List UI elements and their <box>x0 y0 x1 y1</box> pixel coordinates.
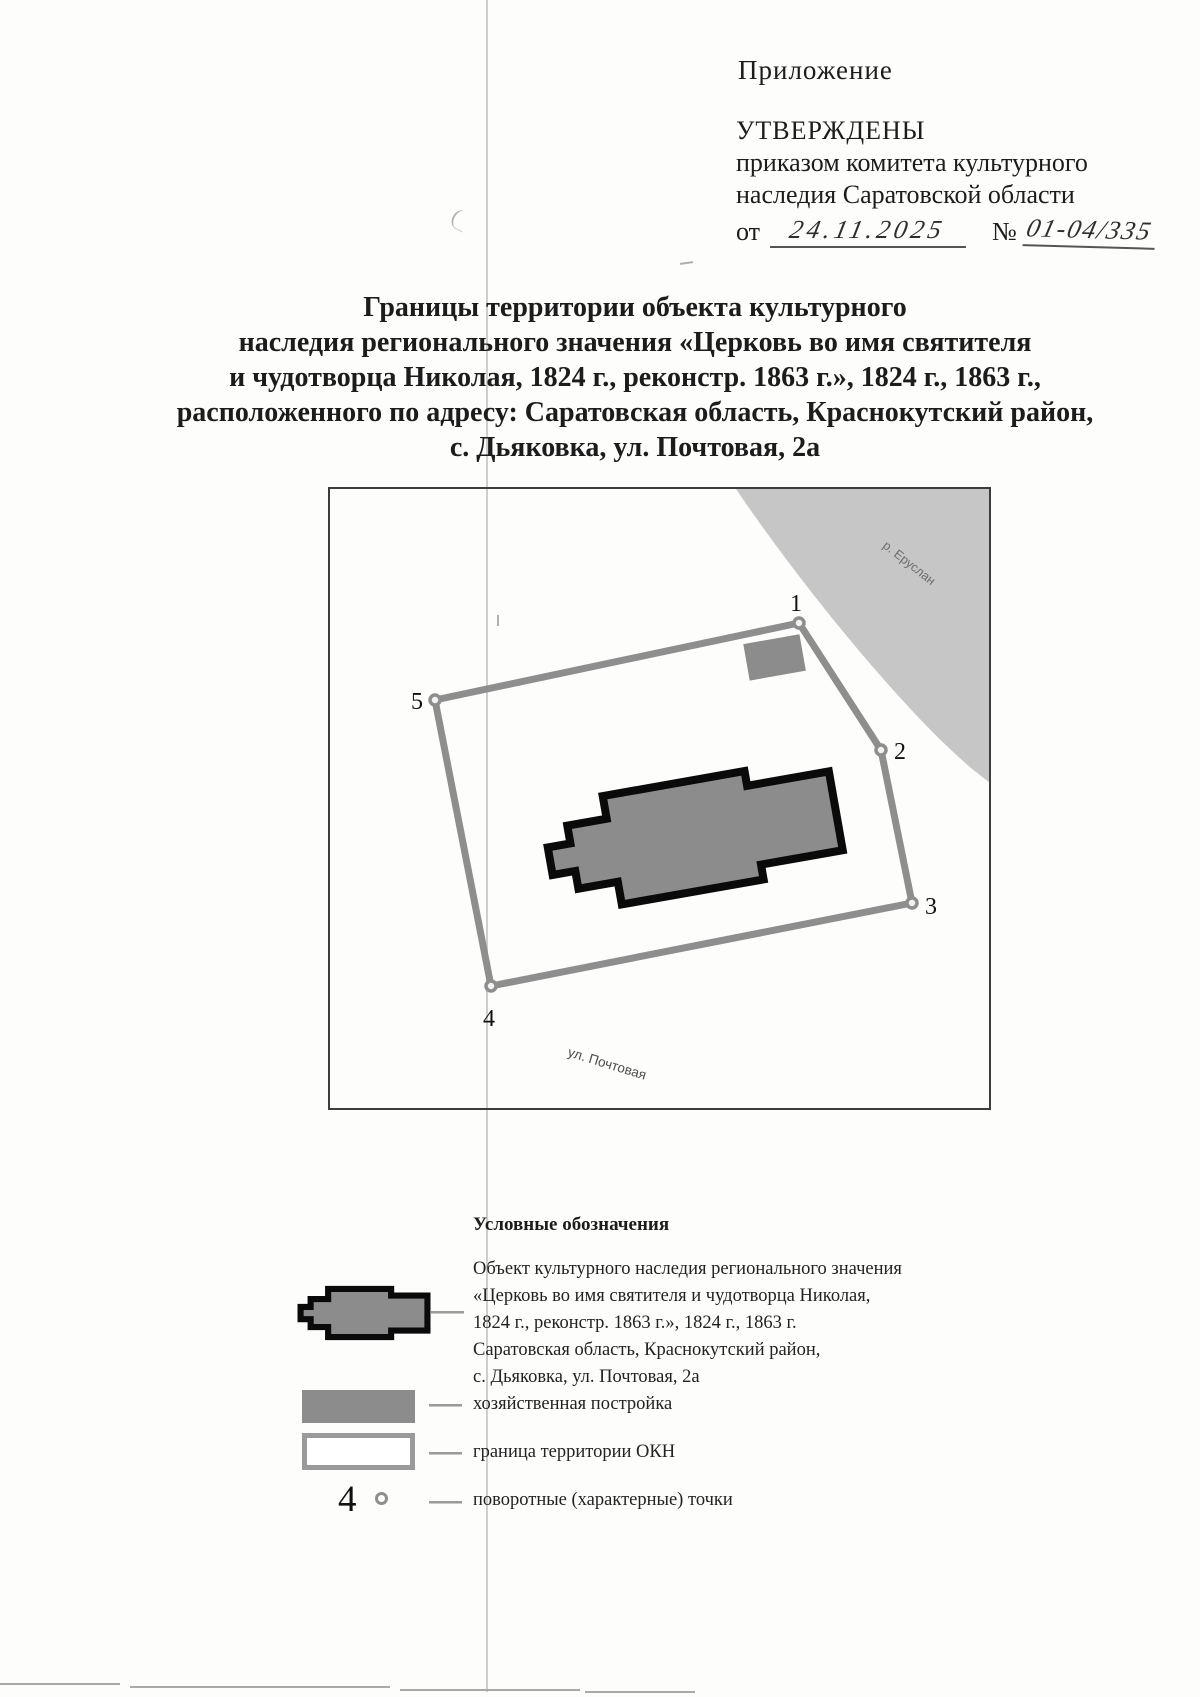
handwritten-date-value: 24.11.2025 <box>787 214 949 246</box>
point-label-2: 2 <box>894 739 906 765</box>
handwritten-date: 24.11.2025 <box>770 214 966 248</box>
legend-item4-text: поворотные (характерные) точки <box>473 1490 733 1511</box>
point-label-5: 5 <box>411 689 423 715</box>
document-page: Приложение УТВЕРЖДЕНЫ приказом комитета … <box>0 0 1200 1697</box>
point-label-1: 1 <box>790 591 802 617</box>
legend-item1-line: Саратовская область, Краснокутский район… <box>473 1337 973 1364</box>
legend-item1-line: 1824 г., реконстр. 1863 г.», 1824 г., 18… <box>473 1310 973 1337</box>
turning-point-3 <box>907 898 917 908</box>
title-line: и чудотворца Николая, 1824 г., реконстр.… <box>40 360 1200 395</box>
approved-word: УТВЕРЖДЕНЫ <box>736 115 1166 147</box>
turning-point-5 <box>430 695 440 705</box>
legend-item1-line: «Церковь во имя святителя и чудотворца Н… <box>473 1283 973 1310</box>
scan-smudge <box>680 261 693 265</box>
outbuilding <box>743 634 806 680</box>
number-prefix: № <box>992 216 1017 248</box>
legend-dash <box>431 1311 464 1314</box>
turning-point-2 <box>876 745 886 755</box>
legend-dash <box>429 1501 462 1504</box>
river-area <box>736 489 989 782</box>
site-plan-svg: р. Еруслан 1 2 3 4 5 ул. Почтовая <box>330 489 989 1108</box>
legend-point-number: 4 <box>338 1478 357 1521</box>
point-label-4: 4 <box>483 1006 495 1032</box>
scan-edge-line <box>400 1689 580 1691</box>
approval-date-row: от 24.11.2025 № 01-04/335 <box>736 214 1166 248</box>
church-footprint-shape <box>541 757 846 916</box>
title-line: наследия регионального значения «Церковь… <box>40 325 1200 360</box>
legend-item1-line: Объект культурного наследия региональног… <box>473 1256 973 1283</box>
legend-dash <box>429 1452 462 1455</box>
legend-item1-line: с. Дьяковка, ул. Почтовая, 2а <box>473 1364 973 1391</box>
scan-smudge <box>497 615 499 626</box>
scan-edge-line <box>585 1691 695 1693</box>
legend-church-shape <box>301 1289 428 1337</box>
scan-edge-line <box>130 1686 390 1688</box>
appendix-label: Приложение <box>738 55 893 86</box>
turning-point-4 <box>486 981 496 991</box>
turning-point-1 <box>794 618 804 628</box>
legend-item3-text: граница территории ОКН <box>473 1442 675 1463</box>
legend-point-circle <box>375 1492 388 1505</box>
legend-church-symbol <box>294 1283 434 1343</box>
document-title: Границы территории объекта культурного н… <box>40 290 1200 465</box>
handwritten-number: 01-04/335 <box>1022 212 1155 250</box>
street-label: ул. Почтовая <box>566 1045 648 1083</box>
title-line: с. Дьяковка, ул. Почтовая, 2а <box>40 430 1200 465</box>
scan-smudge <box>448 207 472 232</box>
legend-item2-text: хозяйственная постройка <box>473 1394 672 1415</box>
date-prefix: от <box>736 216 760 248</box>
point-label-3: 3 <box>925 894 937 920</box>
title-line: Границы территории объекта культурного <box>40 290 1200 325</box>
legend-heading: Условные обозначения <box>473 1214 669 1236</box>
legend-boundary-symbol <box>302 1433 415 1470</box>
approval-block: УТВЕРЖДЕНЫ приказом комитета культурного… <box>736 115 1166 248</box>
church-building <box>541 757 846 916</box>
approval-by-line1: приказом комитета культурного <box>736 147 1166 179</box>
legend-outbuilding-symbol <box>302 1390 415 1423</box>
scan-edge-line <box>0 1683 120 1685</box>
approval-by-line2: наследия Саратовской области <box>736 179 1166 211</box>
title-line: расположенного по адресу: Саратовская об… <box>40 395 1200 430</box>
legend-item1-text: Объект культурного наследия региональног… <box>473 1256 973 1391</box>
handwritten-number-value: 01-04/335 <box>1023 212 1156 247</box>
site-plan-map: р. Еруслан 1 2 3 4 5 ул. Почтовая <box>328 487 991 1110</box>
legend-dash <box>429 1404 462 1407</box>
